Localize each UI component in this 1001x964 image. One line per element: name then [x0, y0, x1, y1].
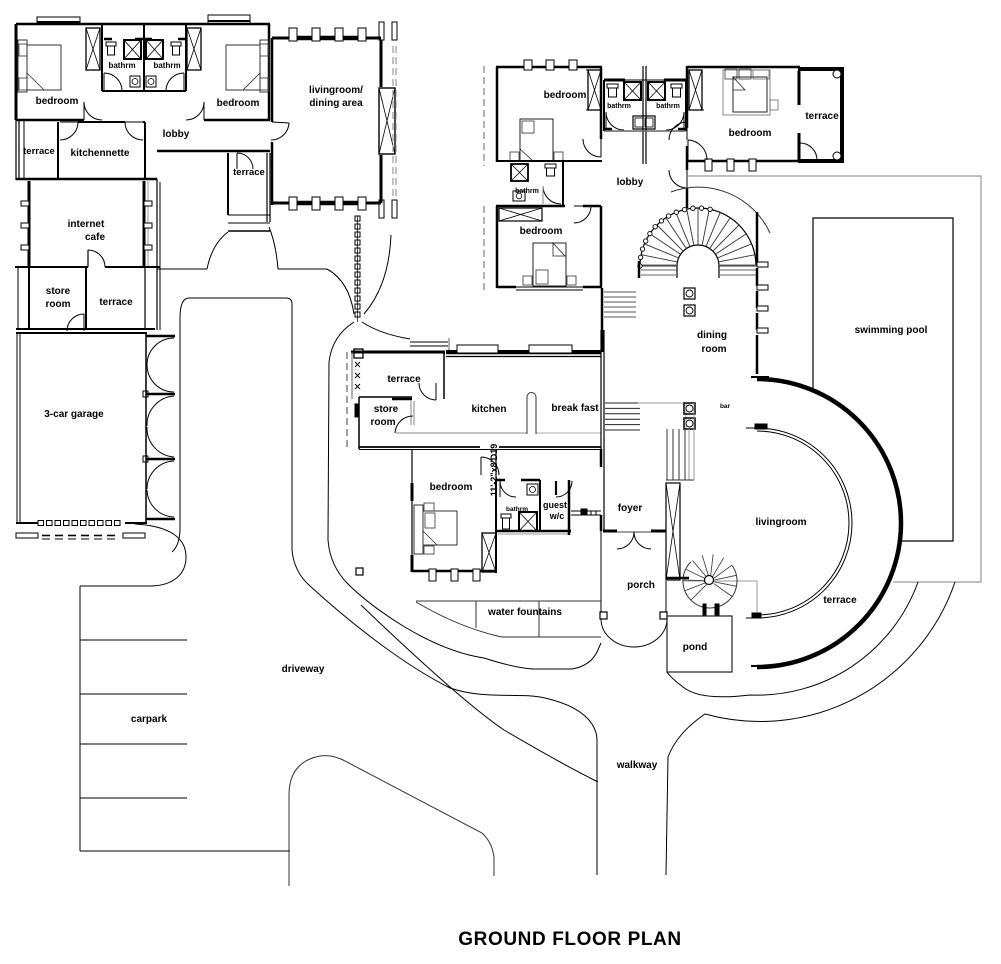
svg-text:bedroom: bedroom — [430, 482, 473, 493]
svg-text:terrace: terrace — [99, 297, 133, 308]
svg-text:water fountains: water fountains — [487, 607, 562, 618]
svg-text:bathrm: bathrm — [153, 61, 180, 70]
svg-text:pond: pond — [683, 642, 707, 653]
svg-text:carpark: carpark — [131, 714, 168, 725]
svg-text:terrace: terrace — [805, 111, 839, 122]
svg-text:break fast: break fast — [551, 403, 599, 414]
svg-text:room: room — [371, 417, 396, 428]
svg-text:terrace: terrace — [387, 374, 421, 385]
svg-text:walkway: walkway — [616, 760, 658, 771]
svg-text:3-car garage: 3-car garage — [44, 409, 104, 420]
svg-text:w/c: w/c — [549, 511, 565, 521]
svg-text:porch: porch — [627, 580, 655, 591]
svg-text:bathrm: bathrm — [656, 103, 680, 110]
svg-text:bar: bar — [720, 403, 731, 410]
svg-text:guest: guest — [543, 500, 567, 510]
svg-text:bedroom: bedroom — [544, 90, 587, 101]
svg-text:lobby: lobby — [163, 129, 190, 140]
svg-text:bedroom: bedroom — [729, 128, 772, 139]
svg-text:bathrm: bathrm — [108, 61, 135, 70]
svg-text:room: room — [702, 344, 727, 355]
svg-text:bedroom: bedroom — [520, 226, 563, 237]
svg-text:lobby: lobby — [617, 177, 644, 188]
svg-text:room: room — [46, 299, 71, 310]
svg-text:dining: dining — [697, 330, 727, 341]
svg-text:kitchennette: kitchennette — [71, 148, 130, 159]
svg-text:swimming pool: swimming pool — [855, 325, 928, 336]
svg-text:kitchen: kitchen — [471, 404, 506, 415]
svg-text:terrace: terrace — [823, 595, 857, 606]
svg-text:driveway: driveway — [282, 664, 325, 675]
svg-text:livingroom/: livingroom/ — [309, 85, 363, 96]
svg-text:livingroom: livingroom — [755, 517, 806, 528]
svg-text:cafe: cafe — [85, 232, 105, 243]
svg-text:bedroom: bedroom — [217, 98, 260, 109]
svg-text:bathrm: bathrm — [607, 103, 631, 110]
svg-text:internet: internet — [68, 219, 105, 230]
svg-text:GROUND FLOOR PLAN: GROUND FLOOR PLAN — [458, 929, 681, 950]
svg-text:bedroom: bedroom — [36, 96, 79, 107]
svg-text:11'-2"x8'D19: 11'-2"x8'D19 — [489, 444, 499, 497]
svg-text:store: store — [46, 286, 71, 297]
svg-text:terrace: terrace — [233, 167, 265, 178]
svg-text:store: store — [374, 404, 399, 415]
svg-text:dining area: dining area — [309, 98, 363, 109]
svg-text:terrace: terrace — [23, 146, 55, 157]
svg-text:foyer: foyer — [618, 503, 643, 514]
